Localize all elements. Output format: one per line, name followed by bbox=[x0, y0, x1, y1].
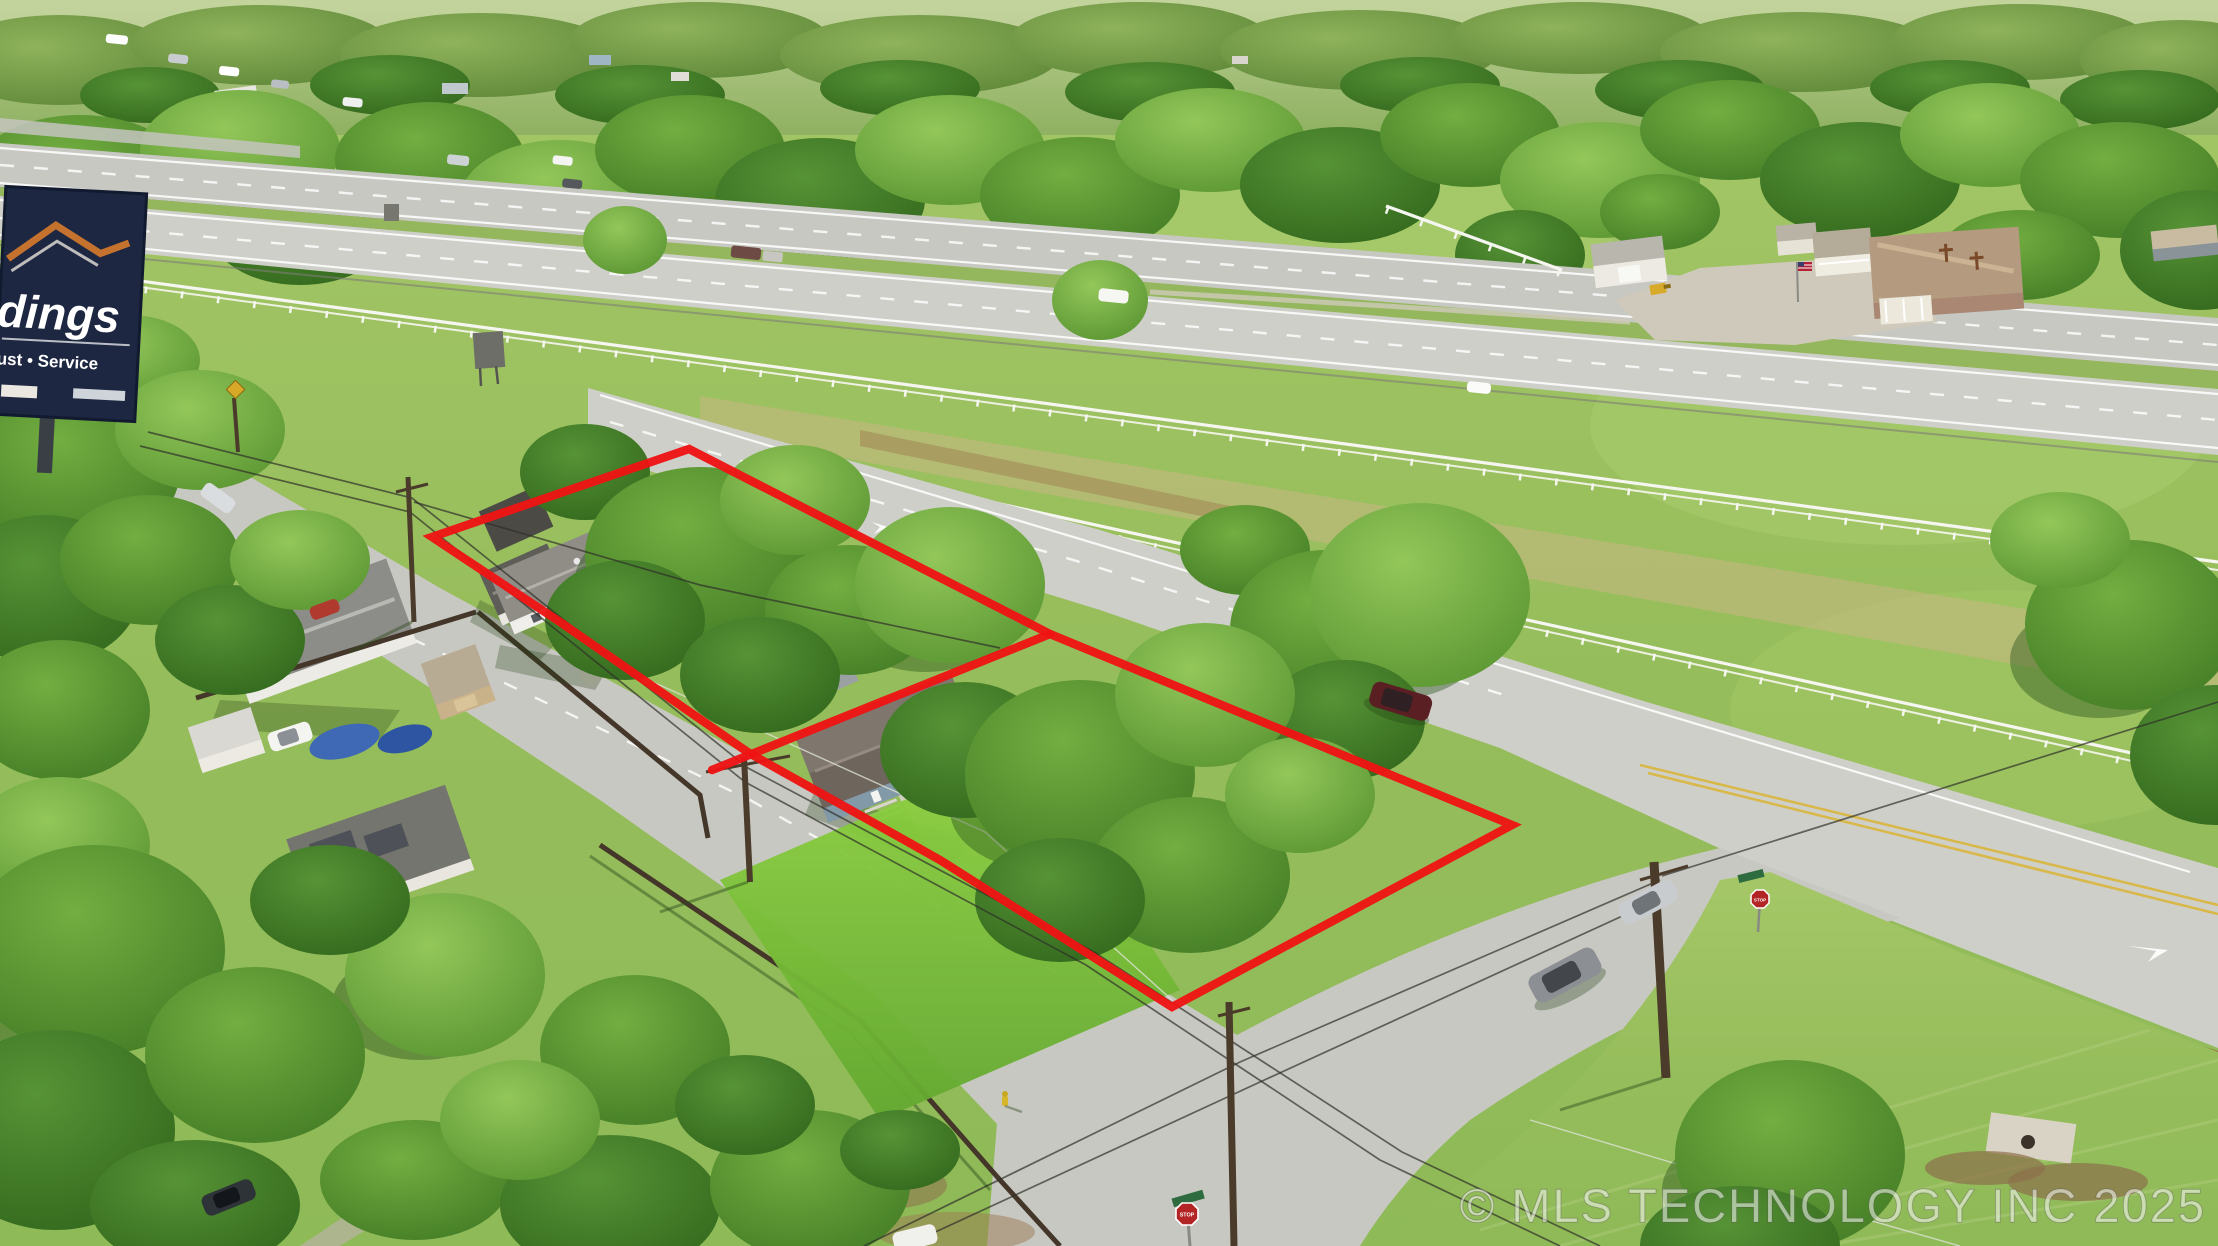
stop-sign-text: STOP bbox=[1180, 1213, 1195, 1219]
aerial-photo: STOP STOP bbox=[0, 0, 2218, 1246]
church-outbuilding-2 bbox=[1812, 228, 1874, 277]
church-outbuilding-1 bbox=[1776, 222, 1818, 255]
billboard-pole bbox=[37, 415, 55, 474]
watermark: © MLS TECHNOLOGY INC 2025 bbox=[1460, 1179, 2206, 1232]
aerial-photo-canvas: STOP STOP bbox=[0, 0, 2218, 1246]
stop-sign-text: STOP bbox=[1754, 898, 1766, 903]
billboard-text-main: dings bbox=[0, 284, 121, 342]
billboard-tag bbox=[1, 385, 38, 399]
church-garage bbox=[1591, 236, 1668, 288]
